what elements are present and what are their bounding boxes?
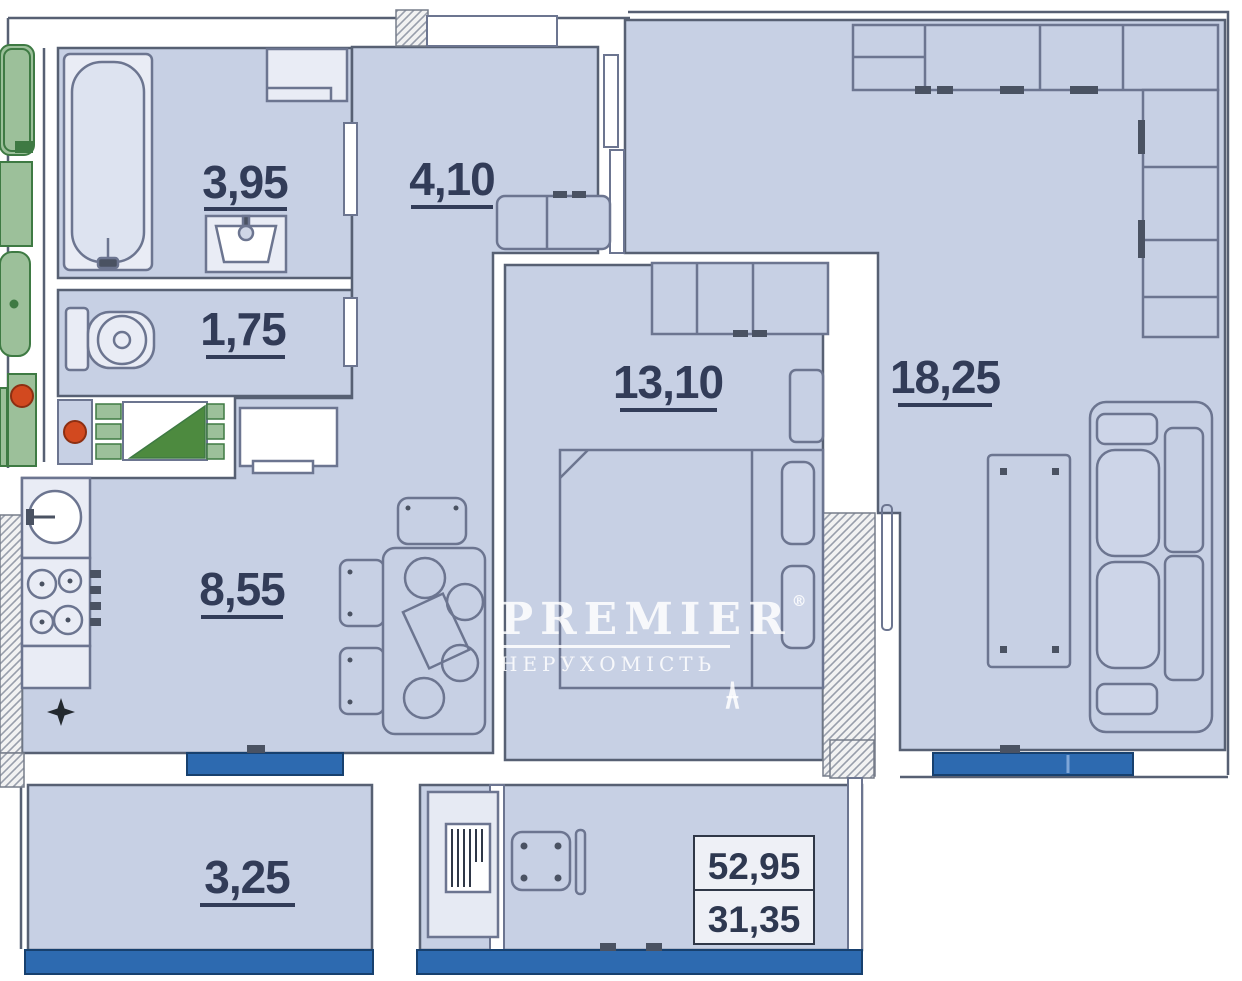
chair (340, 560, 384, 626)
total-area-value: 52,95 (708, 846, 801, 887)
toilet-fixtures (66, 308, 154, 370)
neighbor-counter (0, 162, 32, 246)
riser-dot-icon (64, 421, 86, 443)
bathroom-door-leaf (344, 123, 357, 215)
kitchen-cabinet (22, 646, 90, 688)
toilet-tank (66, 308, 88, 370)
neighbor-unit (0, 388, 7, 466)
sink-tap-icon (239, 226, 253, 240)
hatch-loggia-corner (830, 740, 874, 778)
label-toilet-area: 1,75 (200, 303, 286, 355)
hall-cabinet (497, 196, 610, 249)
floor-plan-canvas: 3,95 4,10 1,75 13,10 18,25 8,55 3,25 52,… (0, 0, 1242, 981)
living-area-value: 31,35 (708, 899, 801, 940)
hatch-entrance-pier (396, 10, 428, 46)
living-niche (882, 505, 892, 630)
stove (22, 558, 90, 646)
floor-plan: 3,95 4,10 1,75 13,10 18,25 8,55 3,25 52,… (0, 0, 1242, 981)
toilet-door-leaf (344, 298, 357, 366)
kitchen-counter-right (1143, 90, 1218, 337)
balcony-glazing (25, 950, 373, 974)
room-balcony (28, 785, 372, 950)
dining-table (383, 548, 485, 734)
riser-dot-icon (11, 385, 33, 407)
watermark-brand: PREMIER® (500, 594, 807, 642)
sofa-cushion (1097, 450, 1159, 556)
sofa-cushion (1097, 562, 1159, 668)
chair (340, 648, 384, 714)
neighbor-bathtub (0, 45, 34, 155)
bathtub-drain-icon (98, 258, 118, 268)
loggia-right-wall (848, 778, 862, 952)
loggia-glazing (417, 950, 862, 974)
label-balcony-area: 3,25 (204, 851, 290, 903)
label-bedroom-area: 13,10 (613, 356, 723, 408)
bedroom-door-leaf (610, 150, 624, 253)
hatch-balcony-corner (0, 753, 24, 787)
watermark-subtitle-row: НЕРУХОМІСТЬ (500, 652, 807, 676)
wardrobe (652, 263, 828, 334)
living-door-leaf (604, 55, 618, 147)
nightstand (790, 370, 823, 442)
hatch-bedroom-living-wall (823, 513, 875, 776)
watermark: PREMIER® НЕРУХОМІСТЬ (500, 594, 807, 676)
chair (398, 498, 466, 544)
label-living-area: 18,25 (890, 351, 1001, 403)
area-summary-box: 52,95 31,35 (694, 836, 814, 944)
pillow (782, 462, 814, 544)
living-room-window (933, 753, 1133, 775)
bathtub-basin (72, 62, 144, 262)
label-bathroom-area: 3,95 (202, 156, 288, 208)
washing-machine (267, 49, 347, 101)
kitchen-balcony-window (187, 753, 343, 775)
stool (512, 832, 570, 890)
coffee-table (988, 455, 1070, 667)
corridor-cabinet (240, 408, 337, 466)
watermark-divider (500, 645, 730, 648)
registered-mark: ® (792, 592, 807, 610)
label-hallway-area: 4,10 (409, 153, 495, 205)
entrance-door (427, 16, 557, 46)
watermark-subtitle: НЕРУХОМІСТЬ (500, 652, 716, 676)
kitchen-fixtures (22, 478, 101, 726)
hatch-kitchen-outer-wall (0, 515, 22, 753)
label-kitchen-area: 8,55 (199, 563, 285, 615)
